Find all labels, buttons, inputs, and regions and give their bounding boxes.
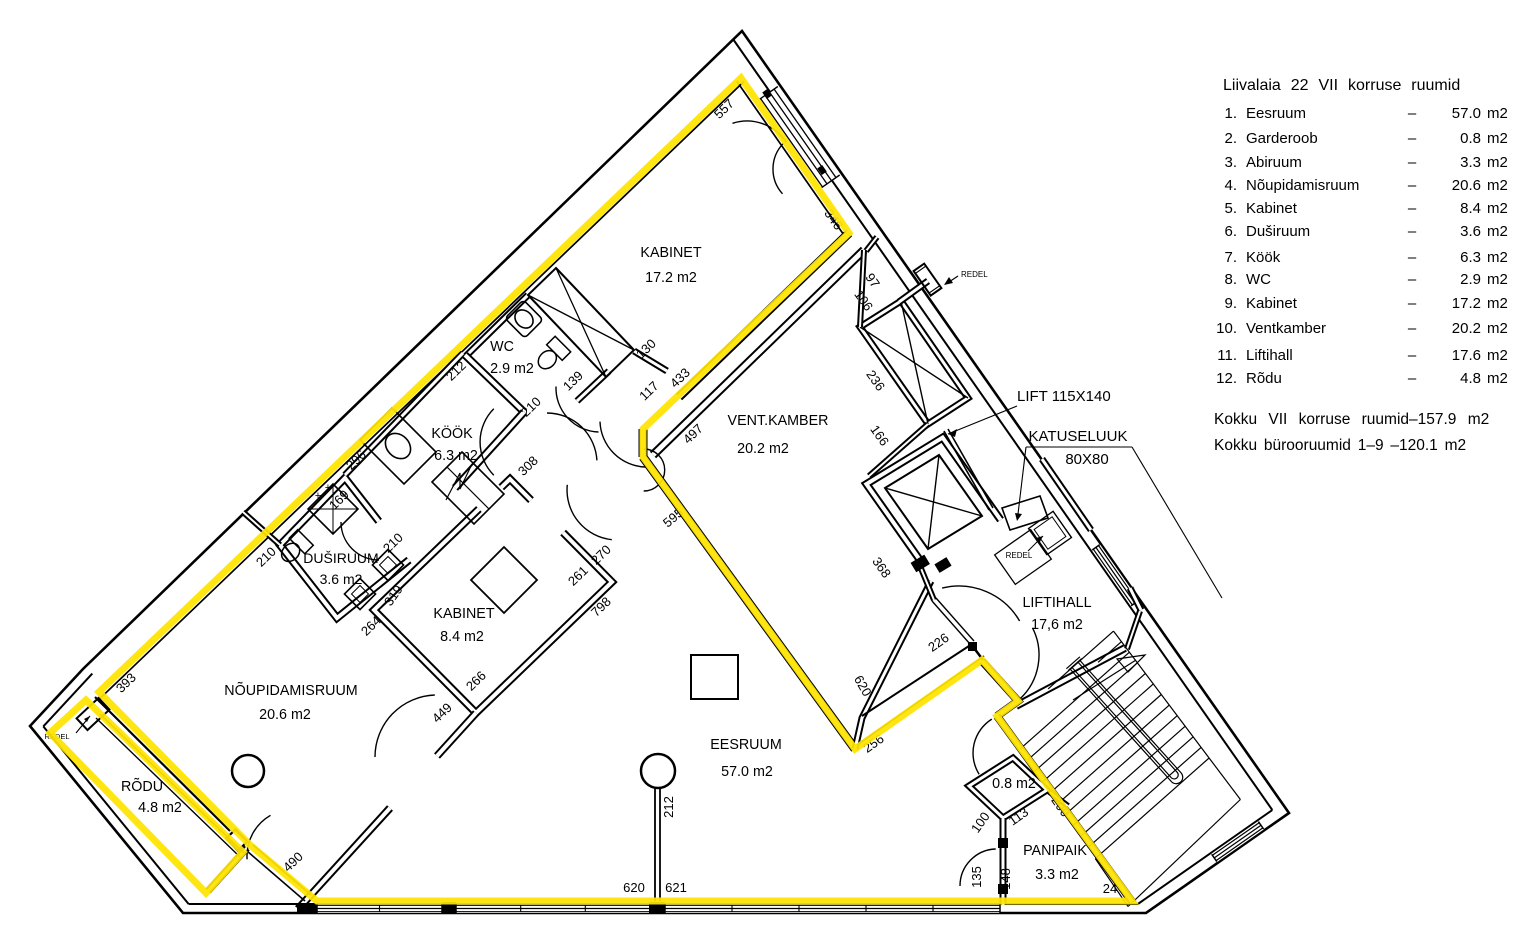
svg-text:9.: 9.: [1224, 295, 1237, 312]
svg-text:REDEL: REDEL: [1006, 551, 1033, 560]
svg-text:Liftihall: Liftihall: [1246, 347, 1293, 364]
svg-text:17.2: 17.2: [1452, 295, 1481, 312]
svg-text:3.6: 3.6: [1460, 223, 1481, 240]
svg-text:0.8 m2: 0.8 m2: [992, 776, 1036, 792]
svg-text:5.: 5.: [1224, 200, 1237, 217]
svg-text:m2: m2: [1487, 370, 1508, 387]
svg-text:m2: m2: [1487, 320, 1508, 337]
svg-text:11.: 11.: [1217, 347, 1237, 364]
svg-text:VENT.KAMBER: VENT.KAMBER: [728, 413, 829, 429]
svg-text:Abiruum: Abiruum: [1246, 154, 1302, 171]
svg-text:Kabinet: Kabinet: [1246, 295, 1298, 312]
svg-text:Rõdu: Rõdu: [1246, 370, 1282, 387]
svg-text:Liivalaia 22 VII korruse ruumi: Liivalaia 22 VII korruse ruumid: [1223, 77, 1460, 94]
svg-text:4.8: 4.8: [1460, 370, 1481, 387]
svg-text:Garderoob: Garderoob: [1246, 130, 1318, 147]
svg-text:17.6: 17.6: [1452, 347, 1481, 364]
svg-text:+: +: [315, 490, 321, 502]
svg-text:17.2 m2: 17.2 m2: [645, 270, 697, 286]
svg-text:Kokku bürooruumid 1–9 –120.1 m: Kokku bürooruumid 1–9 –120.1 m2: [1214, 437, 1466, 454]
svg-text:80X80: 80X80: [1065, 451, 1108, 468]
svg-text:20.2 m2: 20.2 m2: [737, 441, 789, 457]
svg-text:m2: m2: [1487, 177, 1508, 194]
svg-text:Kabinet: Kabinet: [1246, 200, 1298, 217]
svg-text:DUŠIRUUM: DUŠIRUUM: [303, 550, 378, 566]
svg-text:m2: m2: [1487, 271, 1508, 288]
svg-text:20.2: 20.2: [1452, 320, 1481, 337]
svg-text:Duširuum: Duširuum: [1246, 223, 1310, 240]
svg-text:–: –: [1408, 223, 1417, 240]
svg-text:m2: m2: [1487, 223, 1508, 240]
svg-text:m2: m2: [1487, 295, 1508, 312]
svg-text:WC: WC: [1246, 271, 1271, 288]
svg-text:135: 135: [969, 866, 984, 888]
svg-text:212: 212: [661, 796, 676, 818]
svg-text:Nõupidamisruum: Nõupidamisruum: [1246, 177, 1359, 194]
svg-text:LIFTIHALL: LIFTIHALL: [1022, 595, 1091, 611]
svg-text:NÕUPIDAMISRUUM: NÕUPIDAMISRUUM: [224, 682, 357, 699]
svg-text:m2: m2: [1487, 200, 1508, 217]
svg-text:EESRUUM: EESRUUM: [710, 737, 782, 753]
svg-text:m2: m2: [1487, 249, 1508, 266]
svg-text:KÖÖK: KÖÖK: [431, 424, 473, 442]
svg-text:m2: m2: [1487, 154, 1508, 171]
svg-text:12.: 12.: [1216, 370, 1237, 387]
svg-text:621: 621: [665, 880, 687, 895]
svg-text:–: –: [1408, 154, 1417, 171]
svg-text:8.4 m2: 8.4 m2: [440, 629, 484, 645]
svg-text:–: –: [1408, 200, 1417, 217]
svg-text:3.6 m2: 3.6 m2: [320, 571, 363, 587]
svg-text:8.4: 8.4: [1460, 200, 1481, 217]
svg-text:7.: 7.: [1224, 249, 1237, 266]
svg-text:2.9: 2.9: [1460, 271, 1481, 288]
svg-text:KATUSELUUK: KATUSELUUK: [1029, 428, 1128, 445]
svg-text:Ventkamber: Ventkamber: [1246, 320, 1326, 337]
svg-text:+: +: [325, 482, 331, 494]
svg-text:REDEL: REDEL: [961, 270, 988, 279]
svg-text:6.3 m2: 6.3 m2: [434, 448, 478, 464]
svg-text:57.0: 57.0: [1452, 105, 1481, 122]
svg-text:20.6: 20.6: [1452, 177, 1481, 194]
svg-text:–: –: [1408, 130, 1417, 147]
svg-text:3.3 m2: 3.3 m2: [1035, 867, 1079, 883]
svg-text:17,6 m2: 17,6 m2: [1031, 617, 1083, 633]
svg-text:WC: WC: [490, 339, 514, 355]
svg-text:148: 148: [998, 868, 1013, 890]
svg-text:KABINET: KABINET: [640, 245, 701, 261]
svg-text:m2: m2: [1487, 347, 1508, 364]
svg-text:8.: 8.: [1224, 271, 1237, 288]
svg-text:2.: 2.: [1224, 130, 1237, 147]
svg-text:0.8: 0.8: [1460, 130, 1481, 147]
svg-text:–: –: [1408, 347, 1417, 364]
svg-text:–: –: [1408, 295, 1417, 312]
svg-text:LIFT 115X140: LIFT 115X140: [1017, 388, 1111, 405]
svg-text:RÕDU: RÕDU: [121, 778, 163, 795]
svg-text:620: 620: [623, 880, 645, 895]
svg-text:3.: 3.: [1224, 154, 1237, 171]
svg-text:6.: 6.: [1224, 223, 1237, 240]
svg-text:6.3: 6.3: [1460, 249, 1481, 266]
svg-text:4.8 m2: 4.8 m2: [138, 800, 182, 816]
svg-text:–: –: [1408, 271, 1417, 288]
svg-text:10.: 10.: [1216, 320, 1237, 337]
svg-text:4.: 4.: [1224, 177, 1237, 194]
svg-text:1.: 1.: [1224, 105, 1237, 122]
svg-text:–: –: [1408, 177, 1417, 194]
svg-text:KABINET: KABINET: [433, 606, 494, 622]
svg-text:2.9 m2: 2.9 m2: [490, 361, 534, 377]
svg-text:Köök: Köök: [1246, 249, 1281, 266]
svg-text:PANIPAIK: PANIPAIK: [1023, 843, 1087, 859]
svg-text:m2: m2: [1487, 130, 1508, 147]
svg-text:57.0 m2: 57.0 m2: [721, 764, 773, 780]
svg-text:–: –: [1408, 105, 1417, 122]
svg-text:–: –: [1408, 370, 1417, 387]
svg-text:Kokku VII korruse ruumid–157.9: Kokku VII korruse ruumid–157.9 m2: [1214, 411, 1489, 428]
svg-text:–: –: [1408, 320, 1417, 337]
svg-text:Eesruum: Eesruum: [1246, 105, 1306, 122]
svg-text:m2: m2: [1487, 105, 1508, 122]
svg-text:3.3: 3.3: [1460, 154, 1481, 171]
svg-text:20.6 m2: 20.6 m2: [259, 707, 311, 723]
svg-text:–: –: [1408, 249, 1417, 266]
